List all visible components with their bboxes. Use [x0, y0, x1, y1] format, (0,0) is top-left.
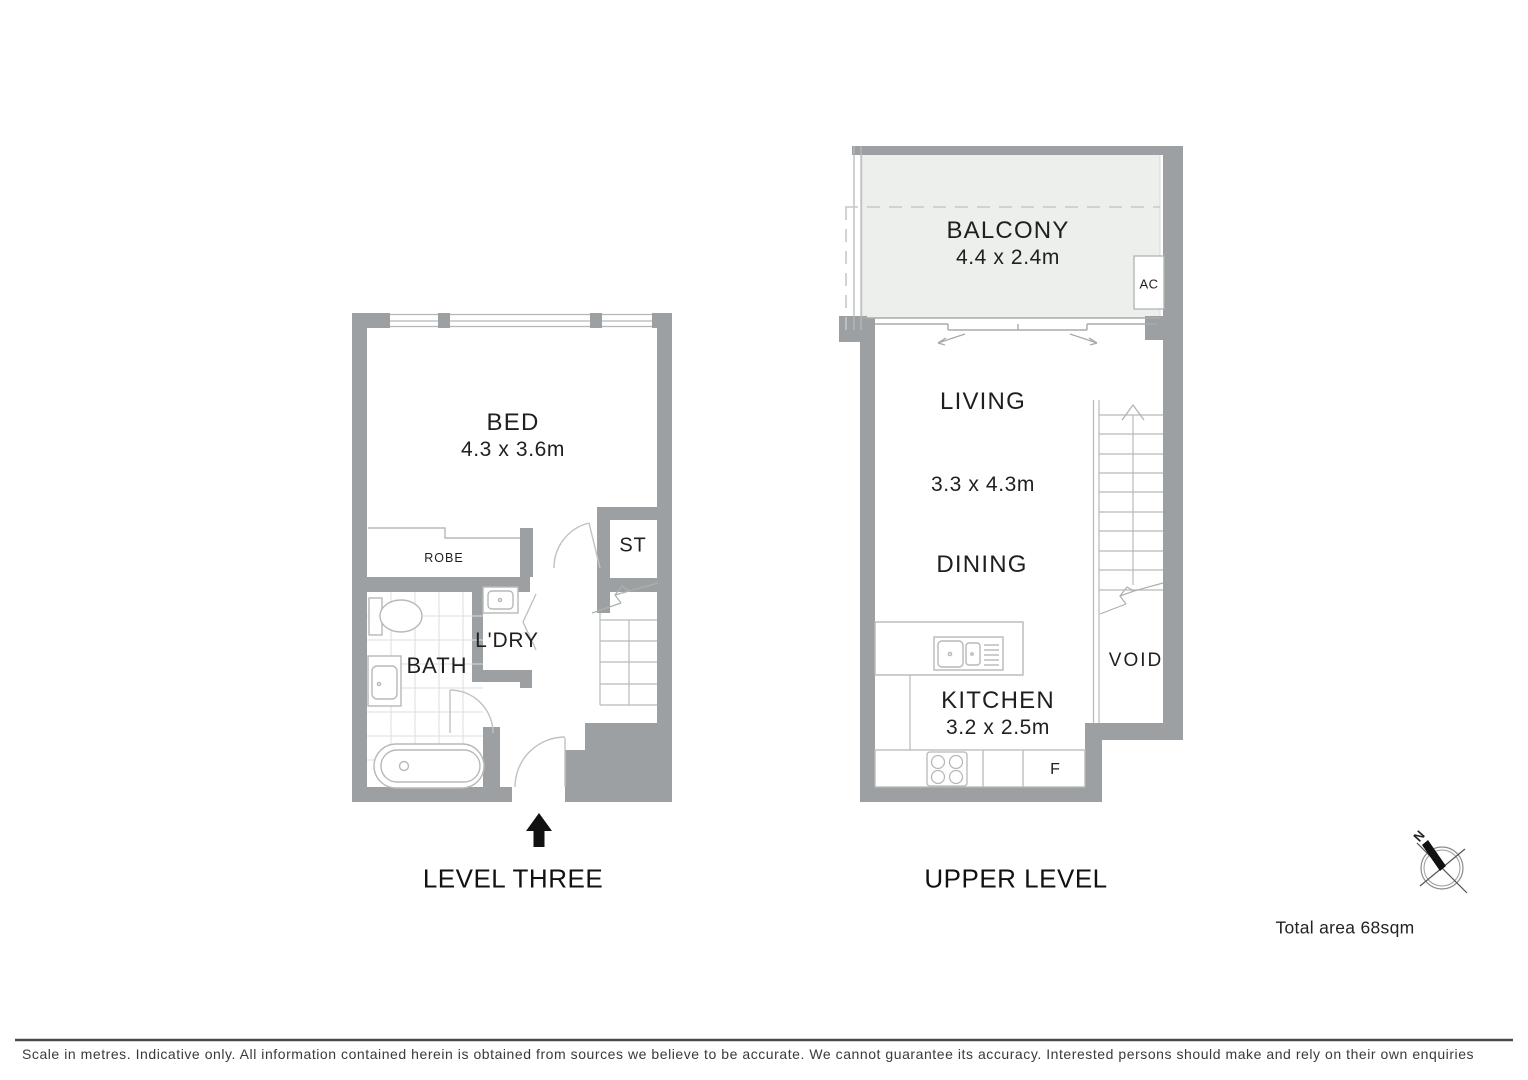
toilet-icon: [369, 598, 422, 635]
kitchen-dims: 3.2 x 2.5m: [946, 716, 1050, 740]
level-three-title: LEVEL THREE: [423, 864, 603, 895]
storage-label: ST: [619, 535, 646, 558]
laundry-label: L'DRY: [475, 629, 539, 653]
compass-icon: [1417, 840, 1467, 893]
ac-label: AC: [1139, 277, 1158, 292]
disclaimer-text: Scale in metres. Indicative only. All in…: [22, 1046, 1474, 1062]
balcony-dims: 4.4 x 2.4m: [956, 246, 1060, 270]
upper-level-title: UPPER LEVEL: [924, 864, 1107, 895]
total-area-text: Total area 68sqm: [1275, 918, 1414, 939]
level-three-plan: [352, 313, 672, 802]
upper-level-stairs: [1094, 400, 1164, 723]
kitchen-sink-icon: [934, 637, 1003, 670]
level-three-walls: [352, 313, 672, 802]
living-dining-dims: 3.3 x 4.3m: [931, 473, 1035, 497]
fridge-label: F: [1050, 761, 1060, 779]
floorplan-page: BED 4.3 x 3.6m ROBE ST L'DRY BATH BALCON…: [0, 0, 1528, 1080]
entry-door-swing: [515, 737, 565, 787]
bedroom-door-swing: [554, 523, 600, 568]
kitchen-label: KITCHEN: [941, 687, 1055, 715]
bath-label: BATH: [406, 653, 467, 679]
laundry-sink-icon: [483, 587, 518, 613]
bed-dims: 4.3 x 3.6m: [461, 438, 565, 462]
robe-joinery-outline: [368, 528, 520, 538]
dining-label: DINING: [936, 551, 1027, 579]
robe-label: ROBE: [424, 551, 463, 565]
entry-arrow-icon: [526, 813, 552, 847]
vanity-basin-icon: [368, 656, 401, 706]
void-label: VOID: [1109, 650, 1163, 672]
bathtub-icon: [374, 744, 484, 788]
bedroom-windows: [390, 314, 652, 327]
living-label: LIVING: [940, 388, 1026, 416]
balcony-sliding-doors: [862, 318, 1160, 345]
bed-label: BED: [487, 409, 540, 437]
balcony-label: BALCONY: [946, 217, 1069, 245]
kitchen-bench: [875, 622, 1023, 675]
